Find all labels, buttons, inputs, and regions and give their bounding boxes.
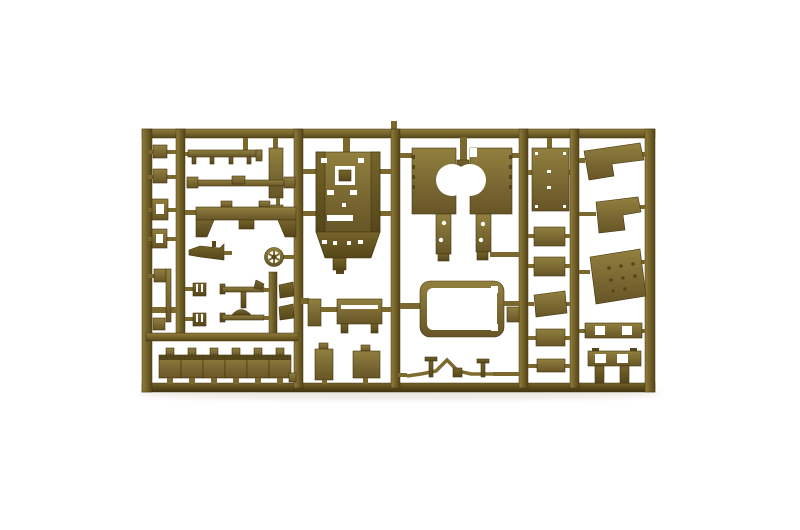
tow-bar (398, 357, 519, 377)
sprue-illustration (0, 0, 800, 530)
gear-levers (220, 280, 294, 322)
bench-seat (301, 298, 391, 333)
window-frame (420, 281, 519, 337)
ammo-boxes (315, 343, 380, 384)
gun-barrel (189, 241, 232, 260)
fender-plates (579, 143, 645, 233)
steering-wheel (265, 248, 295, 267)
product-photo (0, 0, 800, 530)
storage-boxes-row (159, 348, 296, 384)
trapezoid-plate (579, 249, 646, 304)
hull-shell (303, 138, 391, 274)
hatch-panels-column (528, 138, 570, 372)
toothed-rail (185, 138, 262, 164)
slotted-rail (579, 323, 645, 338)
vent-caps (185, 283, 206, 326)
rear-bench (588, 348, 641, 383)
mudguard-plates (400, 137, 520, 261)
